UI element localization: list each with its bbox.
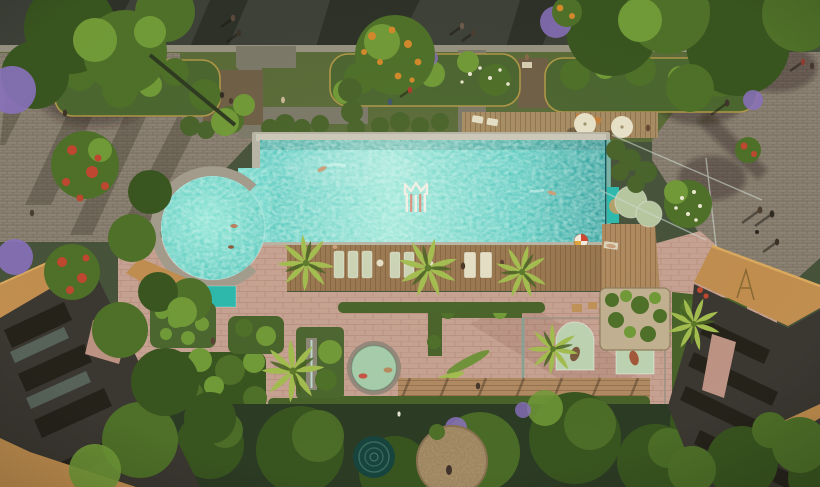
vignette-overlay: [0, 0, 820, 487]
aerial-render-stage: [0, 0, 820, 487]
pool-courtyard-render: [0, 0, 820, 487]
